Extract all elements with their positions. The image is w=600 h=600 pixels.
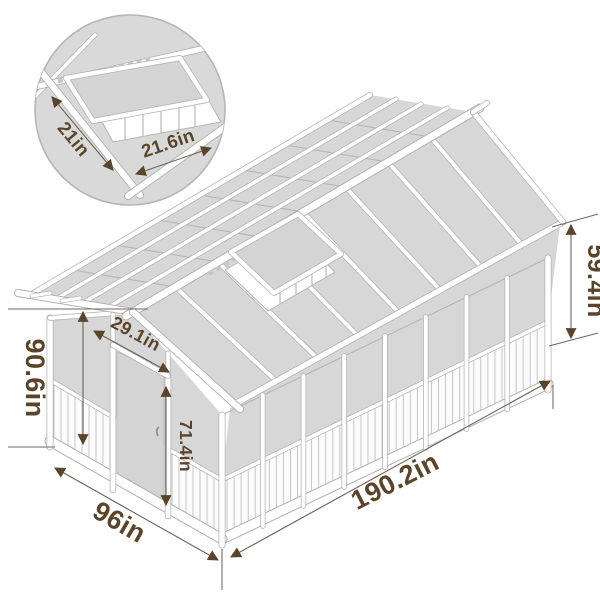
- greenhouse-dimension-diagram: 90.6in 96in 190.2in 59.4in 71.4in 29.1in…: [0, 0, 600, 600]
- dim-total-height-label: 90.6in: [20, 339, 50, 418]
- dim-wall-height-label: 59.4in: [582, 244, 600, 317]
- dim-door-height-label: 71.4in: [176, 420, 196, 472]
- dim-width-label: 96in: [88, 495, 151, 549]
- extension-line: [549, 333, 598, 346]
- vent-detail-inset: 21in 21.6in: [12, 15, 235, 205]
